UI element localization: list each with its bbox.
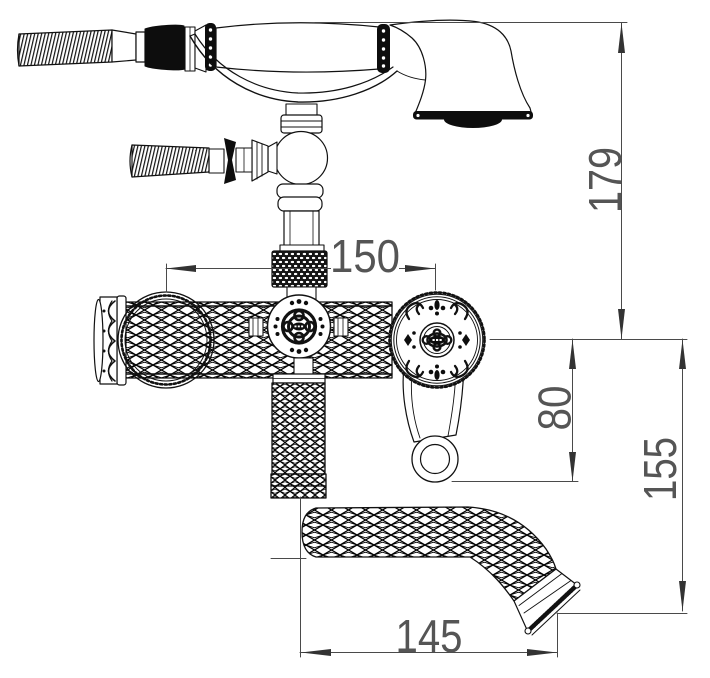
svg-text:145: 145 xyxy=(396,610,463,662)
svg-text:155: 155 xyxy=(634,437,686,501)
svg-text:179: 179 xyxy=(579,147,631,213)
svg-text:150: 150 xyxy=(330,230,400,282)
svg-text:80: 80 xyxy=(529,386,581,431)
